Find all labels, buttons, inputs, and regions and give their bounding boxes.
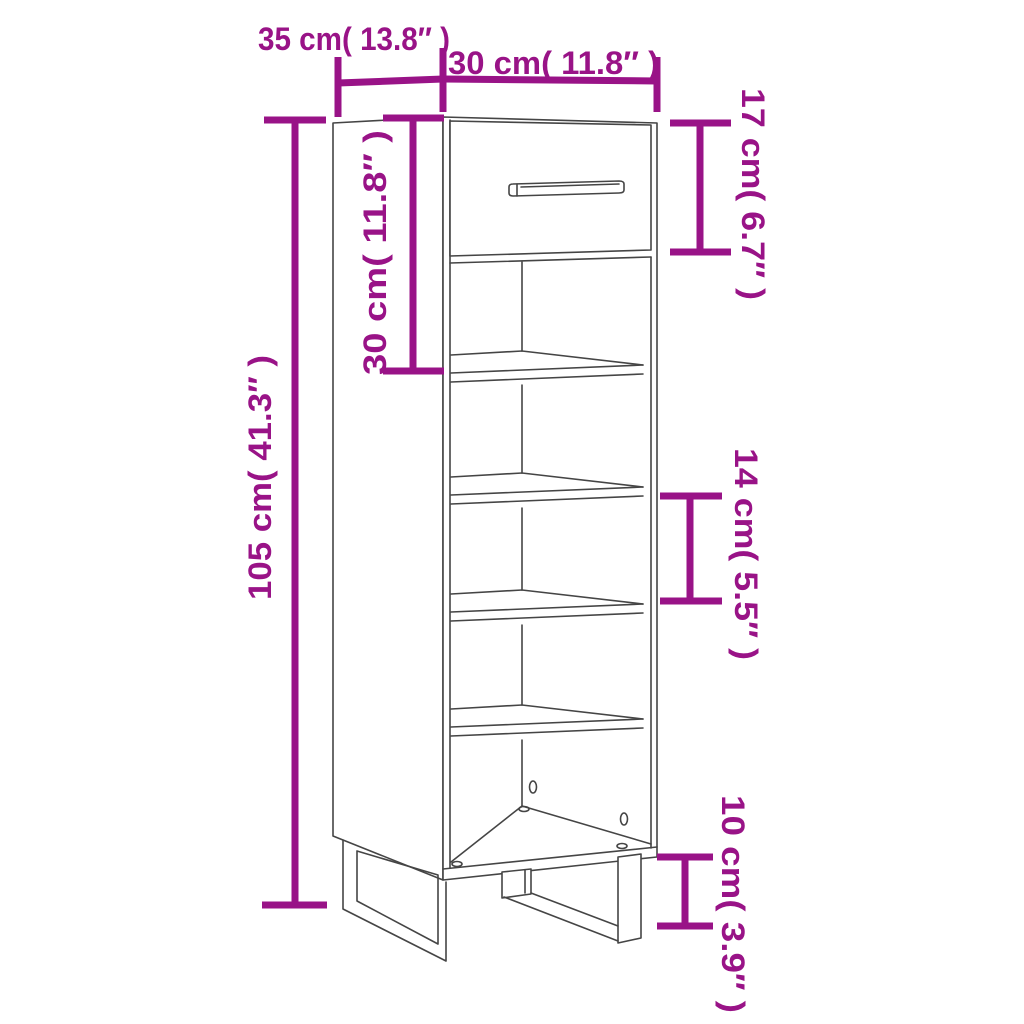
drawer	[450, 121, 651, 263]
dim-drawer-section-height-label: 30 cm( 11.8″ )	[357, 130, 393, 375]
dim-line	[338, 79, 443, 83]
furniture-dimension-diagram: 35 cm( 13.8″ ) 30 cm( 11.8″ ) 17 cm( 6.7…	[0, 0, 1024, 1024]
dim-drawer-height-label: 17 cm( 6.7″ )	[735, 88, 771, 300]
dim-total-height: 105 cm( 41.3″ )	[242, 120, 327, 905]
handle-outline	[509, 181, 624, 196]
drawer-handle-icon	[509, 181, 624, 196]
right-leg-back-post	[502, 869, 531, 898]
dim-total-height-label: 105 cm( 41.3″ )	[242, 355, 278, 600]
dim-shelf-spacing: 14 cm( 5.5″ )	[660, 448, 764, 660]
dim-drawer-height: 17 cm( 6.7″ )	[670, 88, 771, 300]
dim-top-depth: 35 cm( 13.8″ )	[258, 21, 450, 117]
dim-leg-height: 10 cm( 3.9″ )	[657, 795, 751, 1013]
dim-top-depth-label: 35 cm( 13.8″ )	[258, 21, 450, 57]
dim-shelf-spacing-label: 14 cm( 5.5″ )	[728, 448, 764, 660]
right-leg-front-post	[618, 854, 641, 943]
diagram-canvas: 35 cm( 13.8″ ) 30 cm( 11.8″ ) 17 cm( 6.7…	[0, 0, 1024, 1024]
right-leg-bottom-bar-inner	[531, 893, 618, 926]
dim-top-width: 30 cm( 11.8″ )	[443, 45, 659, 112]
dim-top-width-label: 30 cm( 11.8″ )	[448, 45, 659, 81]
dim-leg-height-label: 10 cm( 3.9″ )	[715, 795, 751, 1013]
